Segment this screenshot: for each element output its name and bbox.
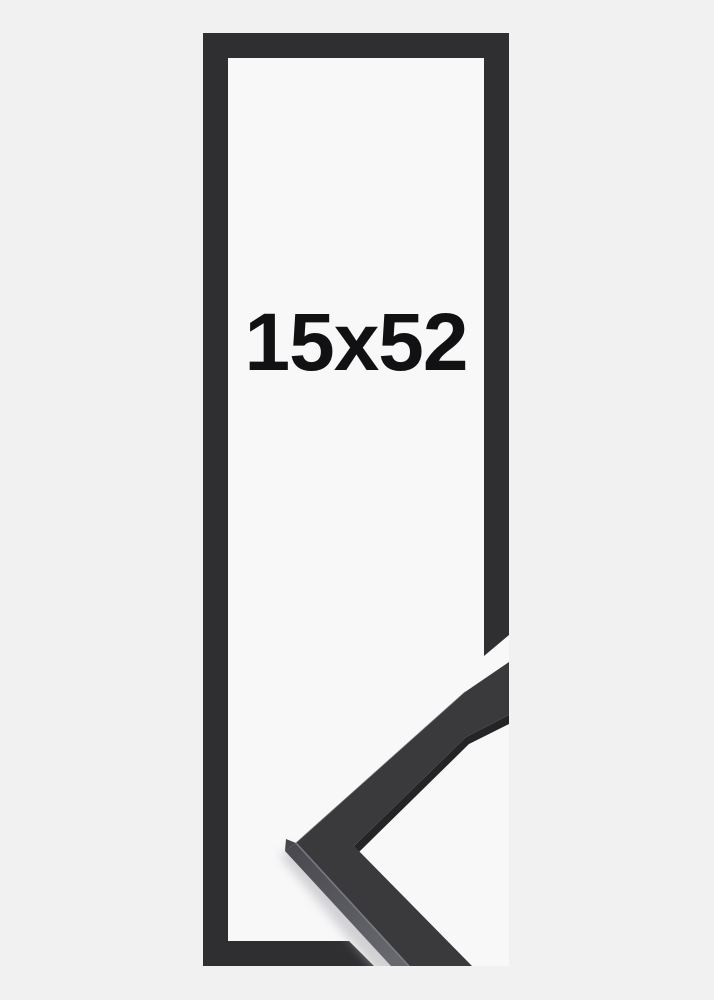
frame-illustration [0, 0, 714, 1000]
size-label: 15x52 [203, 303, 509, 383]
product-image[interactable]: 15x52 [0, 0, 714, 1000]
